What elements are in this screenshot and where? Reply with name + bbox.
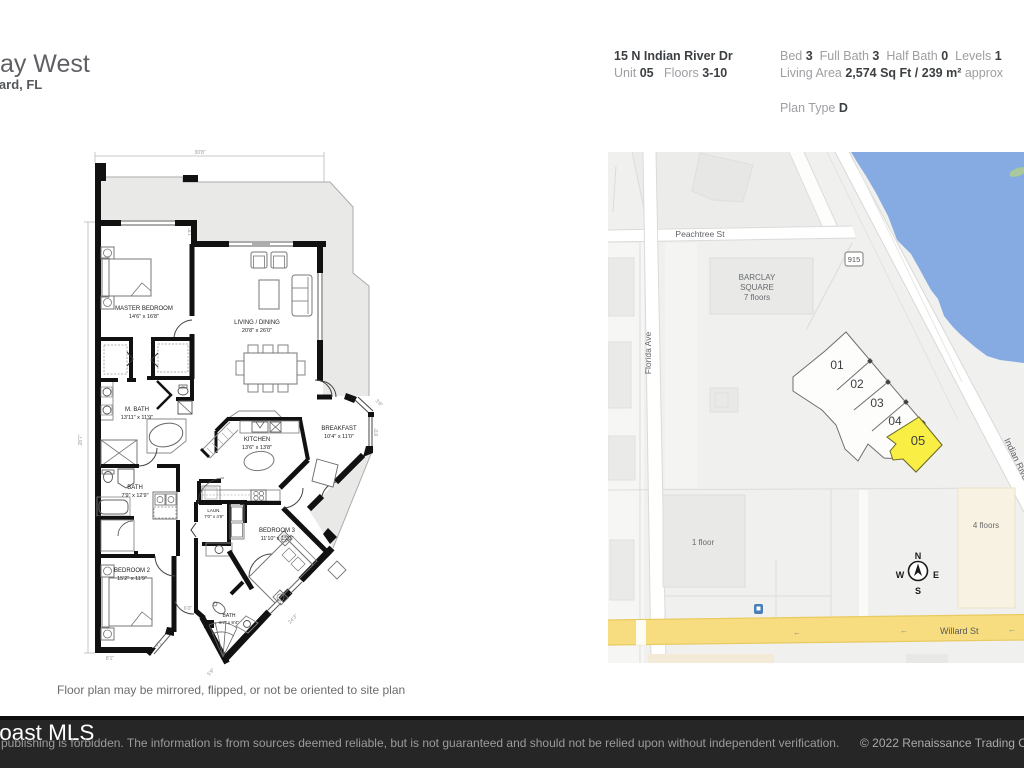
svg-text:LIVING / DINING: LIVING / DINING <box>234 320 280 326</box>
svg-text:BATH: BATH <box>127 485 143 491</box>
svg-text:14'6" x 16'8": 14'6" x 16'8" <box>129 314 159 320</box>
svg-text:←: ← <box>793 628 801 637</box>
svg-text:01: 01 <box>830 358 844 372</box>
svg-text:N: N <box>915 551 922 561</box>
svg-text:02: 02 <box>850 377 864 391</box>
svg-text:Willard St: Willard St <box>940 626 979 636</box>
svg-text:LAUN.: LAUN. <box>207 508 220 513</box>
svg-text:915: 915 <box>848 255 861 264</box>
svg-text:11'10" x 15'0": 11'10" x 15'0" <box>261 536 294 542</box>
svg-text:4 floors: 4 floors <box>973 521 999 530</box>
svg-text:05: 05 <box>911 433 925 448</box>
svg-text:BEDROOM 3: BEDROOM 3 <box>259 528 296 534</box>
svg-text:15'2" x 11'9": 15'2" x 11'9" <box>117 576 147 582</box>
svg-text:7 floors: 7 floors <box>744 293 770 302</box>
svg-text:BATH: BATH <box>223 613 236 619</box>
svg-text:5'9": 5'9" <box>206 667 216 677</box>
svg-text:30'8": 30'8" <box>194 150 205 156</box>
svg-text:W: W <box>896 570 905 580</box>
svg-text:7'9" x 12'9": 7'9" x 12'9" <box>121 493 148 499</box>
svg-text:Florida Ave: Florida Ave <box>643 332 653 375</box>
svg-text:7'0" x 4'6": 7'0" x 4'6" <box>204 514 224 519</box>
svg-text:6'0": 6'0" <box>184 606 193 612</box>
svg-text:8'0": 8'0" <box>374 428 380 437</box>
svg-text:M. BATH: M. BATH <box>125 407 149 413</box>
svg-text:04: 04 <box>888 414 902 428</box>
svg-text:E: E <box>933 570 939 580</box>
svg-text:BEDROOM 2: BEDROOM 2 <box>114 568 151 574</box>
svg-text:S: S <box>915 586 921 596</box>
svg-text:28'7": 28'7" <box>78 434 84 445</box>
svg-text:BARCLAY: BARCLAY <box>739 273 776 282</box>
svg-text:10'4" x 11'0": 10'4" x 11'0" <box>324 434 354 440</box>
svg-text:13'6" x 13'8": 13'6" x 13'8" <box>242 445 272 451</box>
svg-text:03: 03 <box>870 396 884 410</box>
svg-text:13'11" x 11'9": 13'11" x 11'9" <box>121 415 153 421</box>
svg-text:1 floor: 1 floor <box>692 538 715 547</box>
svg-text:BREAKFAST: BREAKFAST <box>321 426 357 432</box>
svg-text:6'7" x 9'4": 6'7" x 9'4" <box>219 620 239 625</box>
svg-text:SQUARE: SQUARE <box>740 283 774 292</box>
svg-text:3'8": 3'8" <box>374 398 384 408</box>
svg-text:←: ← <box>900 626 908 635</box>
svg-text:20'8" x 26'0": 20'8" x 26'0" <box>242 328 272 334</box>
svg-text:24'3": 24'3" <box>287 613 299 625</box>
svg-text:MASTER BEDROOM: MASTER BEDROOM <box>115 306 173 312</box>
svg-text:←: ← <box>1008 625 1016 634</box>
svg-text:KITCHEN: KITCHEN <box>244 437 270 443</box>
svg-text:8'1": 8'1" <box>106 656 115 662</box>
svg-text:Peachtree St: Peachtree St <box>675 229 725 239</box>
